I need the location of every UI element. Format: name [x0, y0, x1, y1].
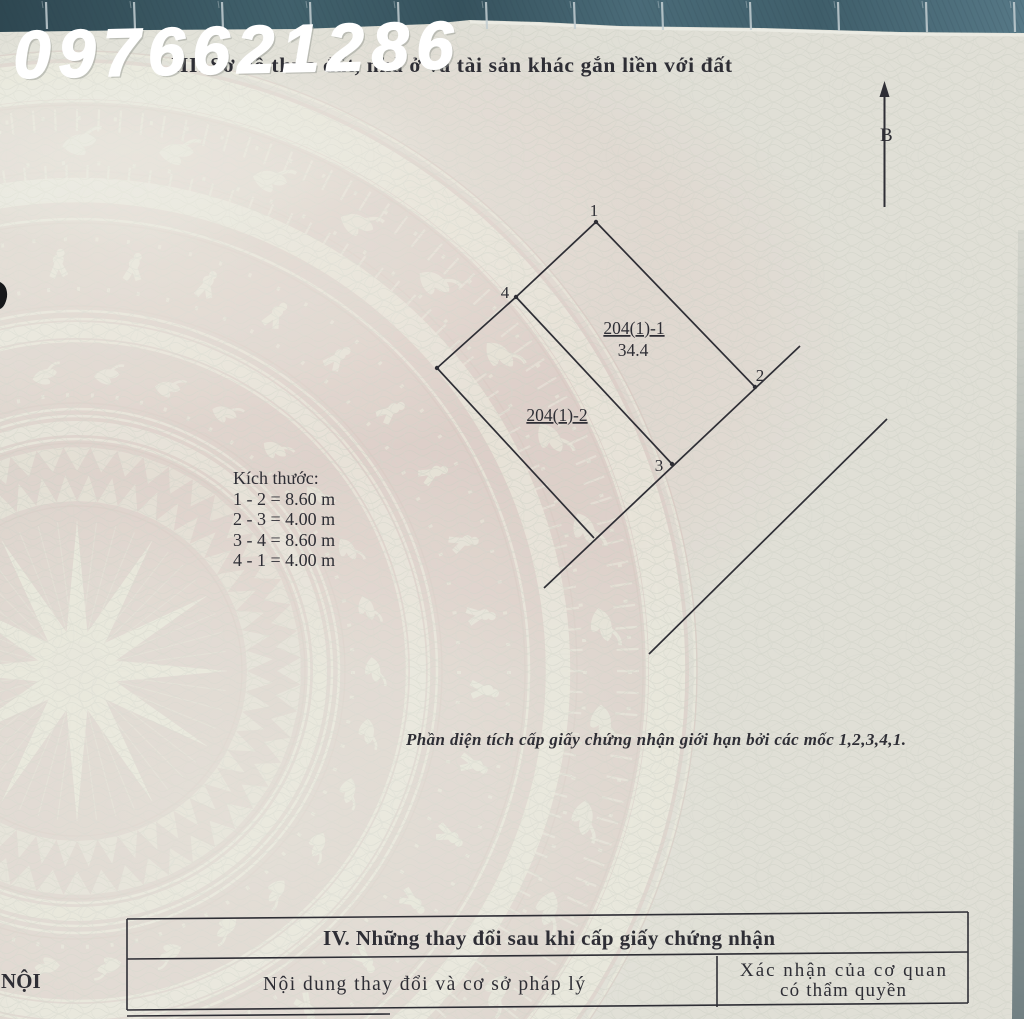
- svg-text:1 - 2 = 8.60 m: 1 - 2 = 8.60 m: [233, 489, 335, 509]
- svg-text:có thẩm quyền: có thẩm quyền: [780, 980, 907, 1001]
- svg-text:Xác nhận của cơ quan: Xác nhận của cơ quan: [740, 960, 947, 981]
- svg-text:0976621286: 0976621286: [13, 8, 462, 93]
- svg-text:2 - 3 = 4.00 m: 2 - 3 = 4.00 m: [233, 509, 335, 529]
- svg-text:1: 1: [590, 201, 599, 220]
- svg-text:Kích thước:: Kích thước:: [233, 468, 319, 488]
- svg-text:B: B: [880, 125, 893, 146]
- svg-text:34.4: 34.4: [618, 340, 649, 360]
- svg-text:Phần diện tích cấp giấy chứng: Phần diện tích cấp giấy chứng nhận giới …: [405, 730, 906, 749]
- svg-text:3: 3: [655, 456, 664, 475]
- svg-text:4: 4: [501, 283, 510, 302]
- svg-text:204(1)-2: 204(1)-2: [526, 405, 587, 425]
- svg-text:2: 2: [756, 366, 765, 385]
- svg-text:4 - 1 = 4.00 m: 4 - 1 = 4.00 m: [233, 550, 335, 570]
- svg-text:IV. Những thay đổi sau khi cấp: IV. Những thay đổi sau khi cấp giấy chứn…: [323, 926, 775, 950]
- svg-text:3 - 4 = 8.60 m: 3 - 4 = 8.60 m: [233, 530, 335, 550]
- svg-text:Nội dung thay đổi và cơ sở phá: Nội dung thay đổi và cơ sở pháp lý: [263, 974, 585, 995]
- svg-text:204(1)-1: 204(1)-1: [603, 318, 664, 338]
- svg-text:NỘI: NỘI: [1, 969, 41, 993]
